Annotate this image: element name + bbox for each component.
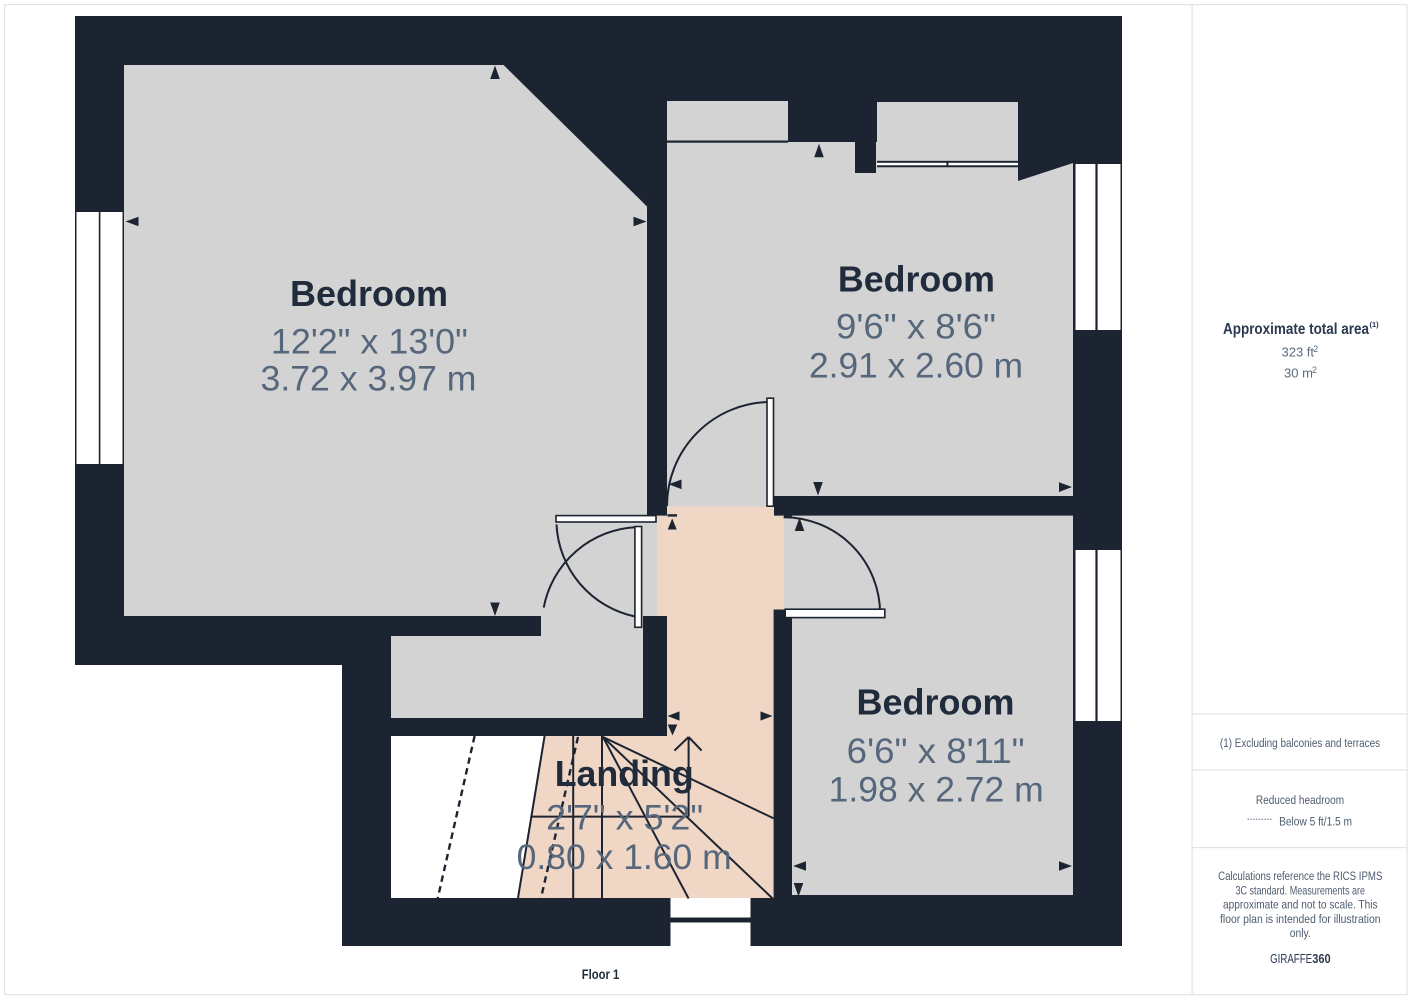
svg-text:Calculations reference the RIC: Calculations reference the RICS IPMS [1218, 869, 1382, 883]
svg-text:Bedroom: Bedroom [838, 259, 995, 300]
svg-text:(1): (1) [1370, 320, 1380, 329]
svg-text:9'6" x 8'6": 9'6" x 8'6" [836, 308, 996, 347]
svg-text:Reduced headroom: Reduced headroom [1256, 793, 1344, 807]
svg-text:approximate and not to scale.: approximate and not to scale. This [1223, 898, 1378, 912]
svg-text:3C standard. Measurements are: 3C standard. Measurements are [1235, 883, 1365, 897]
svg-text:only.: only. [1290, 926, 1311, 940]
svg-text:Below 5 ft/1.5 m: Below 5 ft/1.5 m [1279, 815, 1352, 829]
svg-text:12'2" x 13'0": 12'2" x 13'0" [271, 323, 468, 362]
svg-text:2.91 x 2.60 m: 2.91 x 2.60 m [809, 347, 1023, 386]
svg-text:6'6" x 8'11": 6'6" x 8'11" [847, 732, 1025, 771]
svg-text:Approximate total area: Approximate total area [1223, 321, 1369, 338]
svg-text:323 ft: 323 ft [1282, 345, 1315, 360]
svg-text:2'7" x 5'2": 2'7" x 5'2" [546, 799, 703, 838]
svg-text:Bedroom: Bedroom [290, 273, 448, 314]
svg-text:360: 360 [1312, 951, 1330, 966]
svg-text:(1) Excluding balconies and te: (1) Excluding balconies and terraces [1220, 736, 1380, 750]
svg-text:2: 2 [1312, 365, 1317, 375]
svg-text:30 m: 30 m [1284, 366, 1313, 381]
svg-text:1.98 x 2.72 m: 1.98 x 2.72 m [829, 771, 1044, 810]
svg-text:GIRAFFE: GIRAFFE [1270, 951, 1312, 966]
svg-text:Floor 1: Floor 1 [582, 966, 620, 982]
svg-text:2: 2 [1313, 344, 1318, 354]
svg-text:Landing: Landing [555, 753, 694, 794]
svg-text:floor plan is intended for ill: floor plan is intended for illustration [1220, 912, 1381, 926]
svg-text:3.72 x 3.97 m: 3.72 x 3.97 m [261, 360, 477, 399]
svg-text:0.80 x 1.60 m: 0.80 x 1.60 m [517, 838, 732, 877]
svg-text:Bedroom: Bedroom [857, 682, 1015, 723]
